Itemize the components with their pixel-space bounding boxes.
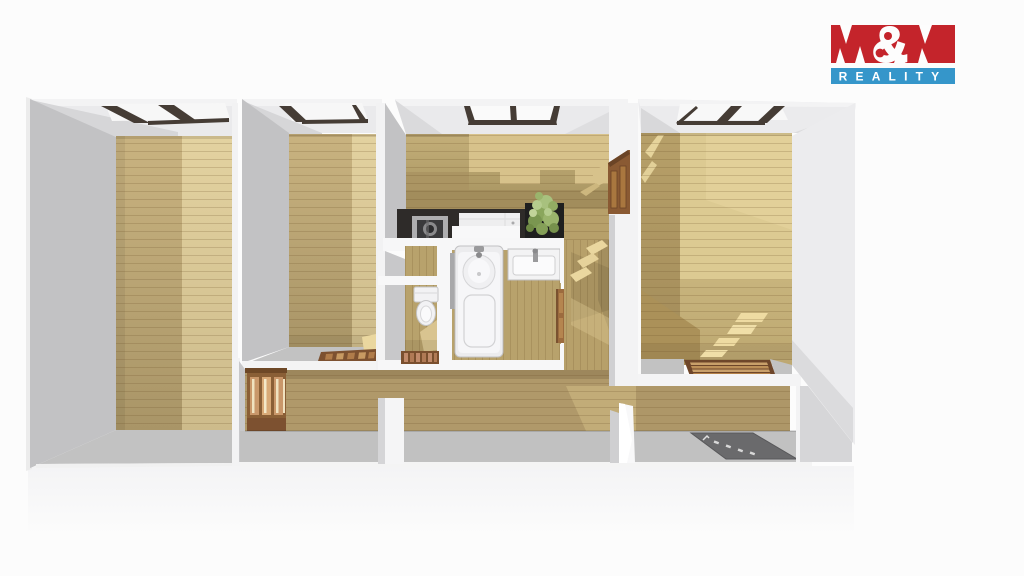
svg-text:&: & xyxy=(873,19,908,72)
svg-text:REALITY: REALITY xyxy=(839,70,948,84)
